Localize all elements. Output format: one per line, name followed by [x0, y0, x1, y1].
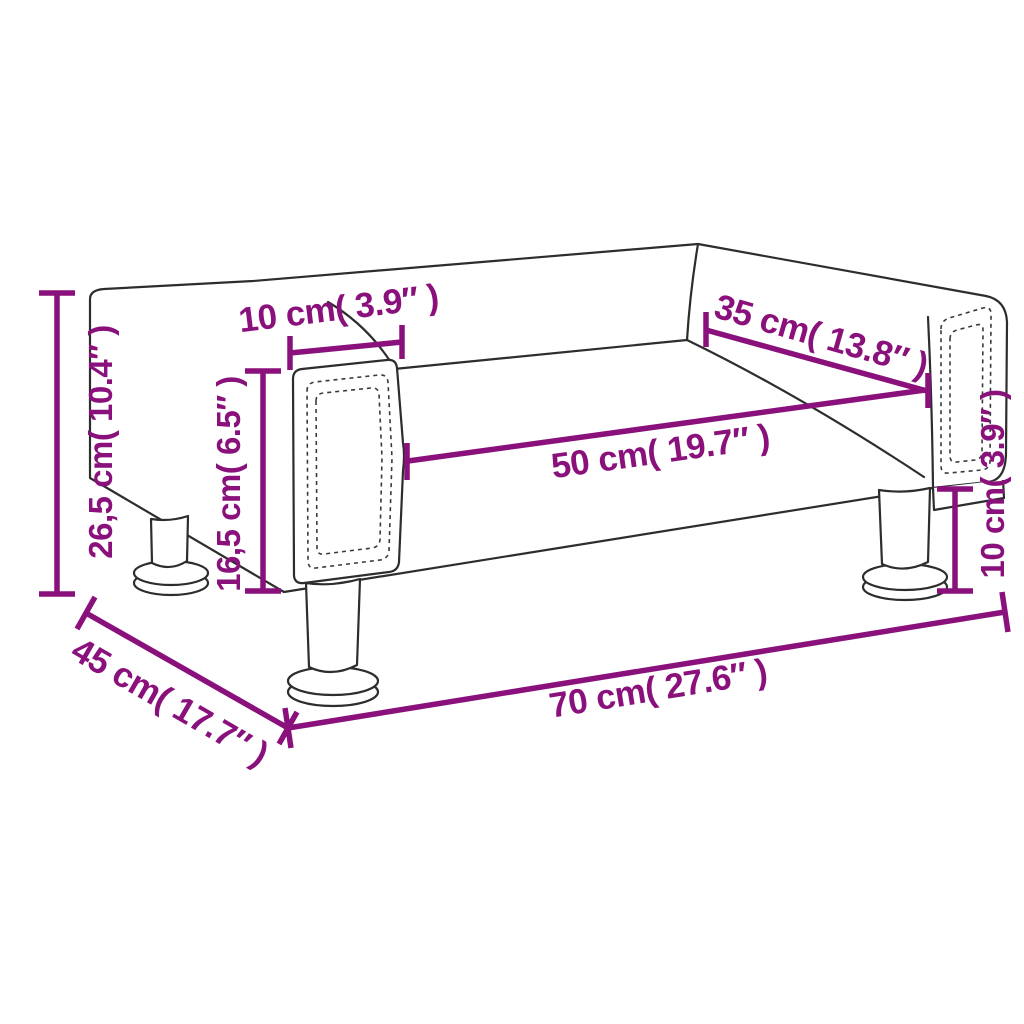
- front-left-leg: [288, 579, 378, 706]
- dim-total-width-label: 70 cm( 27.6″ ): [546, 652, 769, 726]
- leg-cylinder: [306, 579, 360, 672]
- dimension-diagram: 26,5 cm( 10.4″ ) 16,5 cm( 6.5″ ) 10 cm( …: [0, 0, 1024, 1024]
- dim-total-width: 70 cm( 27.6″ ): [285, 592, 1008, 748]
- dim-tick: [77, 597, 95, 629]
- left-armrest-face: [293, 360, 404, 583]
- dim-tick: [1002, 592, 1008, 632]
- dim-tick: [285, 708, 291, 748]
- sofa-dimension-drawing: 26,5 cm( 10.4″ ) 16,5 cm( 6.5″ ) 10 cm( …: [0, 0, 1024, 1024]
- dim-leg-height-label: 10 cm( 3.9″ ): [974, 389, 1011, 578]
- leg-cylinder: [879, 488, 930, 569]
- dim-armrest-height-label: 16,5 cm( 6.5″ ): [210, 376, 247, 592]
- leg-cylinder: [151, 516, 188, 567]
- dim-total-height-label: 26,5 cm( 10.4″ ): [82, 325, 119, 558]
- dim-total-height: 26,5 cm( 10.4″ ): [39, 293, 119, 594]
- dim-total-depth: 45 cm( 17.7″ ): [65, 597, 297, 774]
